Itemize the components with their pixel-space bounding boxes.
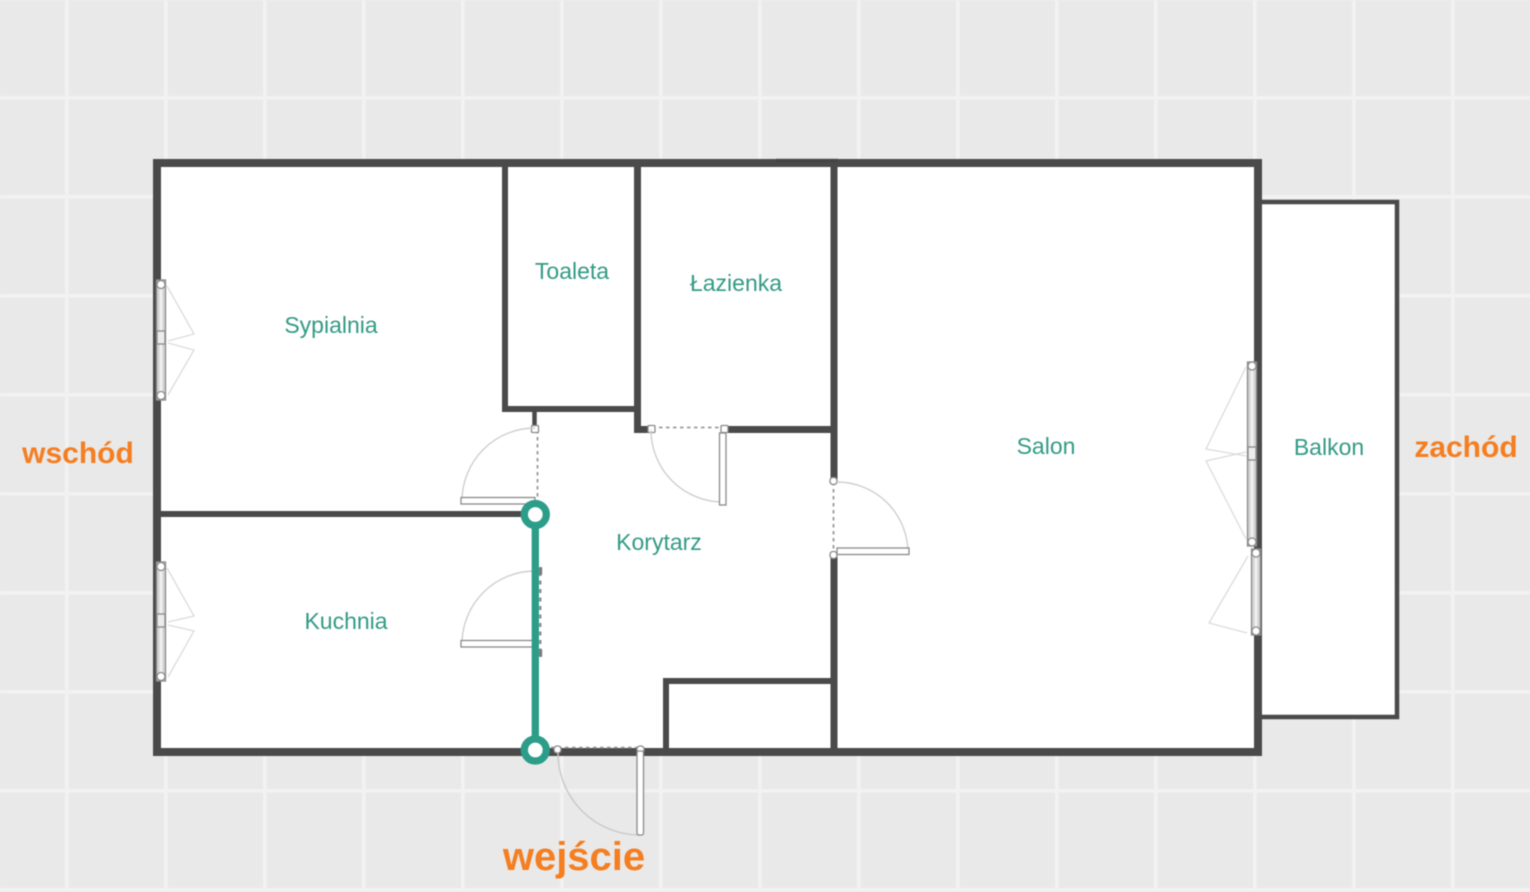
svg-text:wschód: wschód xyxy=(21,437,134,470)
svg-text:Balkon: Balkon xyxy=(1294,434,1364,460)
svg-text:Korytarz: Korytarz xyxy=(616,529,702,555)
svg-text:Toaleta: Toaleta xyxy=(535,258,609,284)
svg-text:Kuchnia: Kuchnia xyxy=(304,608,387,634)
svg-text:wejście: wejście xyxy=(502,835,645,879)
svg-text:Łazienka: Łazienka xyxy=(690,270,782,296)
svg-text:zachód: zachód xyxy=(1414,431,1517,464)
svg-text:Salon: Salon xyxy=(1017,433,1076,459)
svg-text:Sypialnia: Sypialnia xyxy=(284,312,378,338)
